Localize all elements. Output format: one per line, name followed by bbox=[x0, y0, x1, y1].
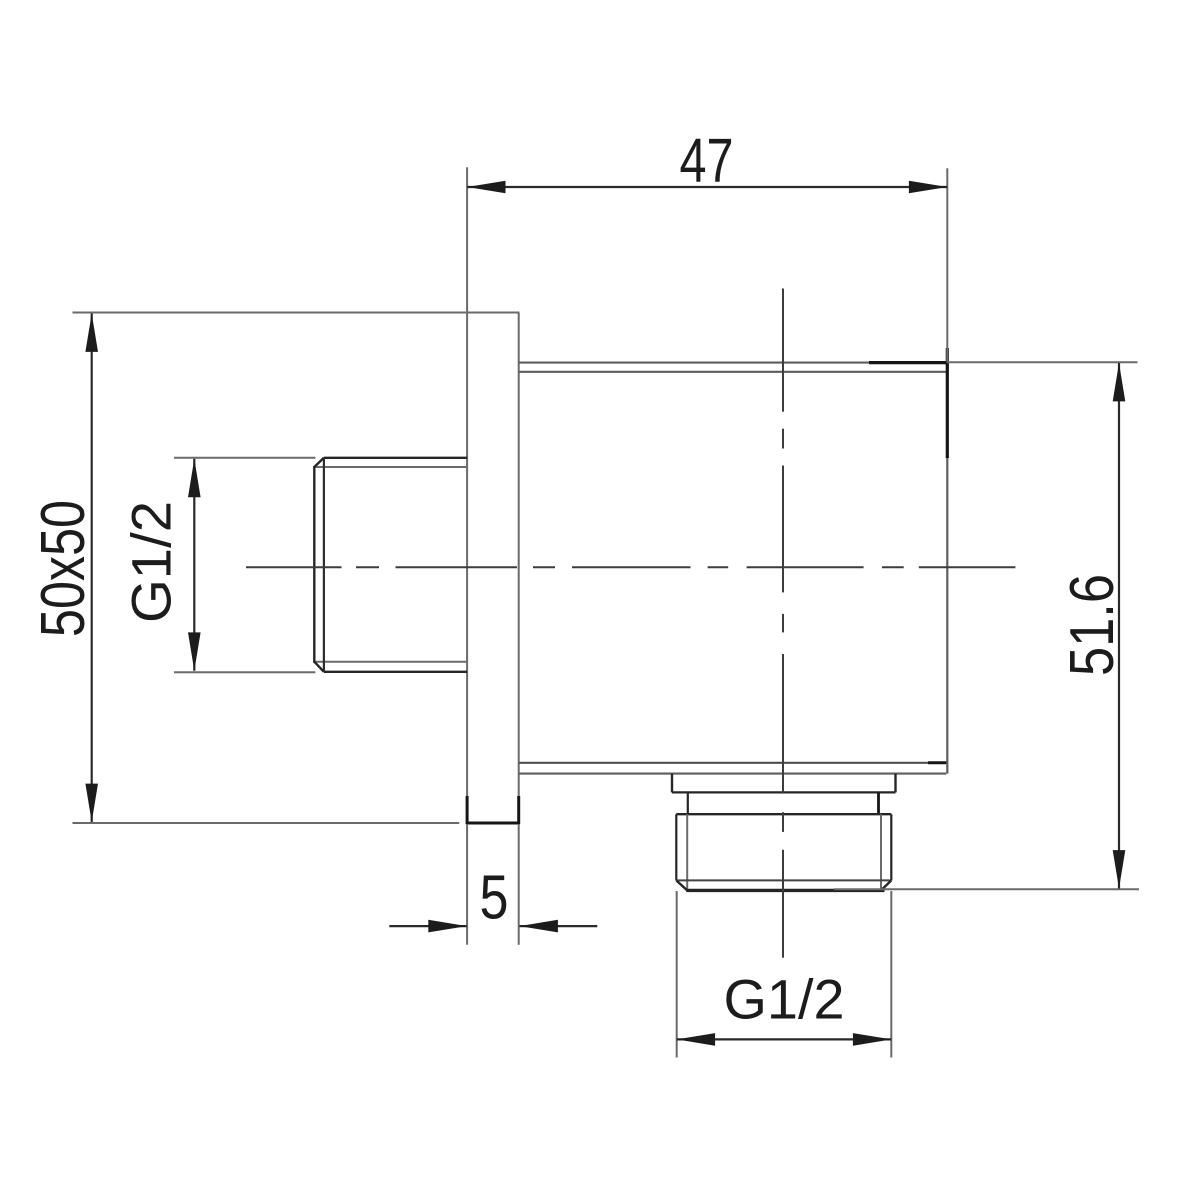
svg-text:47: 47 bbox=[680, 127, 734, 196]
svg-text:G1/2: G1/2 bbox=[724, 967, 845, 1030]
svg-text:50x50: 50x50 bbox=[29, 500, 98, 637]
svg-text:5: 5 bbox=[480, 864, 509, 933]
svg-text:51.6: 51.6 bbox=[1058, 574, 1127, 676]
svg-text:G1/2: G1/2 bbox=[120, 501, 183, 623]
